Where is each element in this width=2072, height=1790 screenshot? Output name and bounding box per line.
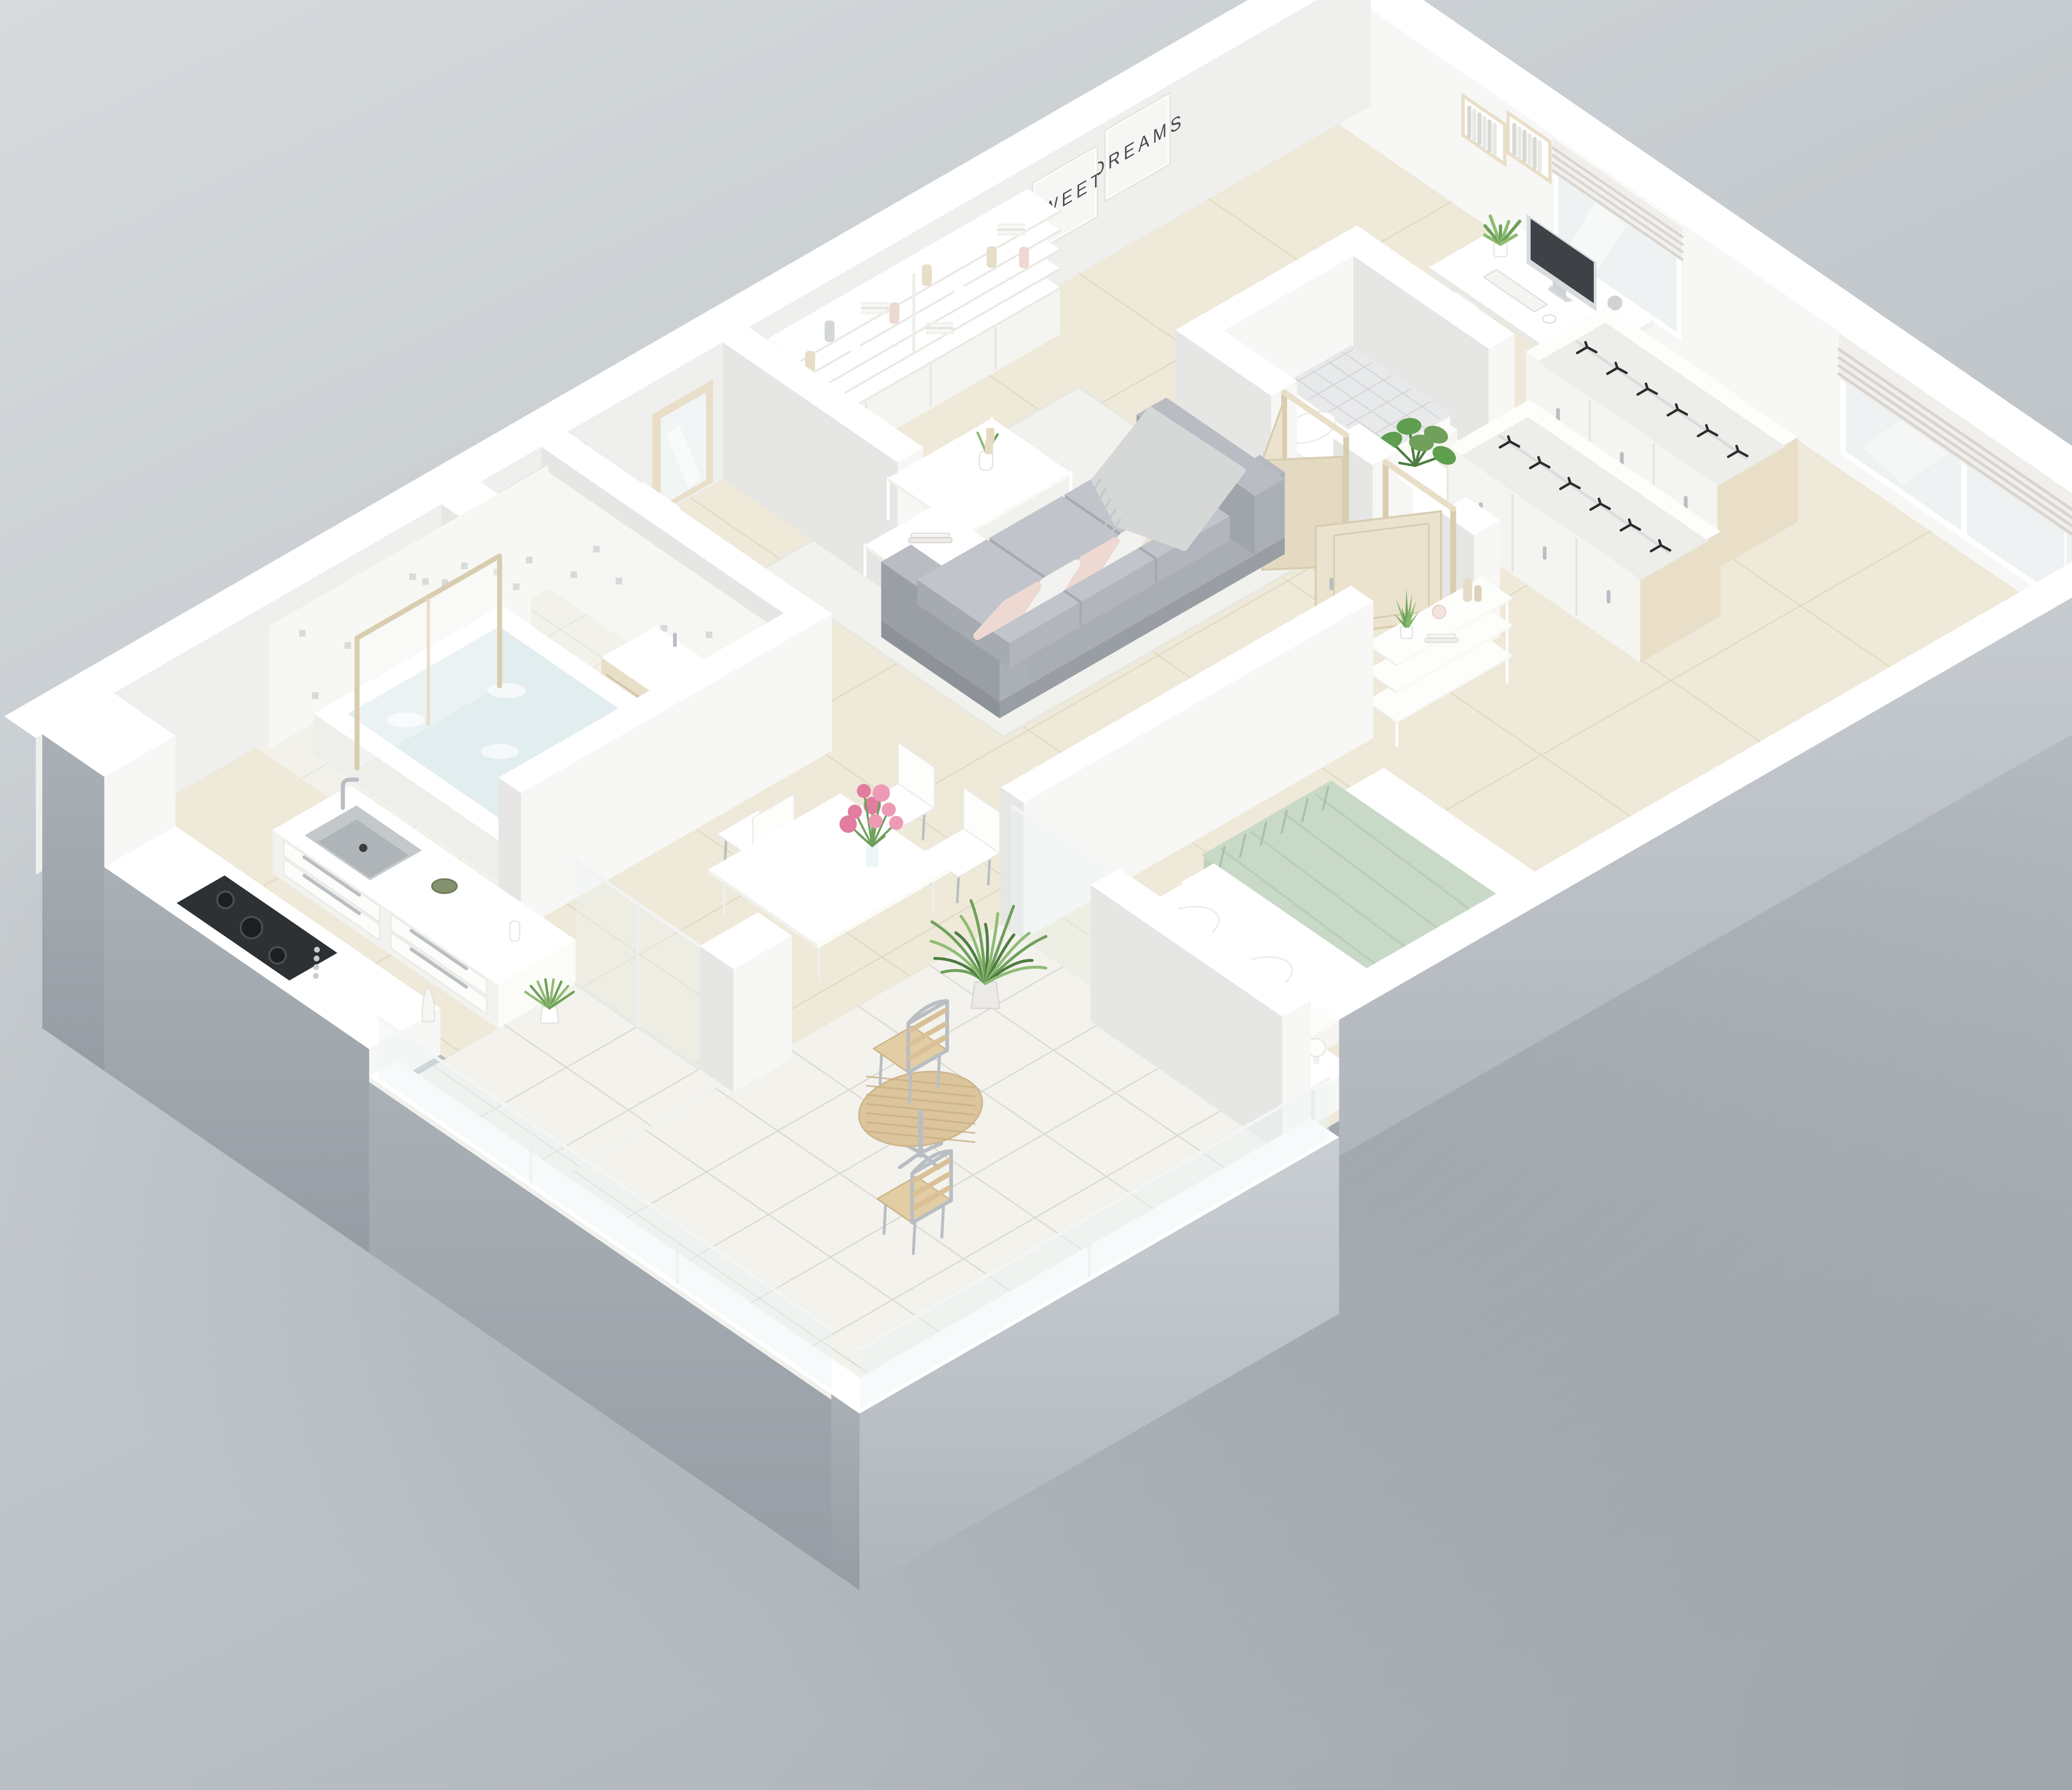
book-stack <box>997 232 1025 236</box>
mosaic-dot <box>616 578 622 584</box>
coffee-table-books <box>909 538 952 543</box>
shelf-books <box>1428 634 1456 638</box>
rose-flower <box>840 815 857 833</box>
wardrobe-row-2-handle <box>1607 590 1610 603</box>
exterior-skirt <box>42 734 104 1071</box>
book-stack <box>861 306 889 310</box>
rose-flower <box>869 814 883 828</box>
decor-vase <box>1463 578 1472 602</box>
book-stack <box>926 322 954 325</box>
book-stack <box>926 331 954 334</box>
decor-vase <box>954 284 964 306</box>
hob-knob <box>314 947 320 953</box>
glass-door-stub-side <box>700 946 733 1092</box>
decor-vase <box>1474 585 1481 602</box>
white-vase <box>510 921 520 941</box>
mosaic-dot <box>422 578 429 585</box>
wardrobe-row-2-handle <box>1543 546 1547 559</box>
decor-vase <box>889 302 899 324</box>
hob-knob <box>314 955 320 961</box>
book-stack <box>861 311 889 314</box>
decor-vase <box>825 320 835 342</box>
decor-vase <box>1019 247 1029 268</box>
plant-pot <box>971 982 1000 1009</box>
mosaic-dot <box>461 563 468 569</box>
door-handle-icon <box>1329 578 1334 590</box>
rose-flower <box>873 784 890 802</box>
hob-knob <box>313 973 319 979</box>
coral-decor <box>1433 605 1446 619</box>
hob-knob <box>313 964 319 970</box>
book-stack <box>926 327 954 330</box>
hob-burner <box>269 947 286 964</box>
book-stack <box>997 228 1025 231</box>
mosaic-dot <box>344 642 351 649</box>
hob-burner <box>241 917 262 939</box>
green-bowl <box>432 879 457 893</box>
rose-flower <box>882 803 896 817</box>
mosaic-dot <box>409 573 416 580</box>
floorplan-3d-render: DREAMSSWEET <box>0 0 2072 1790</box>
mosaic-dot <box>513 583 520 590</box>
rose-flower <box>889 816 903 830</box>
decor-vase <box>922 264 932 286</box>
candle <box>986 428 995 442</box>
book-stack <box>861 302 889 305</box>
mosaic-dot <box>706 631 712 638</box>
mosaic-dot <box>312 692 319 699</box>
sink-drain <box>359 844 368 852</box>
floorplan-scene: DREAMSSWEET <box>0 0 2072 1790</box>
rose-flower <box>857 784 871 798</box>
hob-burner <box>217 892 234 908</box>
coffee-table-books <box>911 533 949 537</box>
mosaic-dot <box>299 630 306 636</box>
mosaic-dot <box>526 557 533 564</box>
mosaic-dot <box>571 571 577 578</box>
water-highlight <box>481 744 519 759</box>
snake-plant-pot <box>1401 626 1412 639</box>
decor-vase <box>987 246 997 268</box>
candle <box>985 440 993 454</box>
mouse <box>1543 315 1556 323</box>
exterior-corner <box>831 1394 859 1590</box>
glass-door-stub <box>700 912 792 1092</box>
glass-vase <box>866 844 879 868</box>
book-stack <box>997 223 1025 227</box>
shelf-books <box>1425 638 1458 642</box>
mosaic-dot <box>593 546 600 552</box>
decor-vase <box>850 344 860 365</box>
